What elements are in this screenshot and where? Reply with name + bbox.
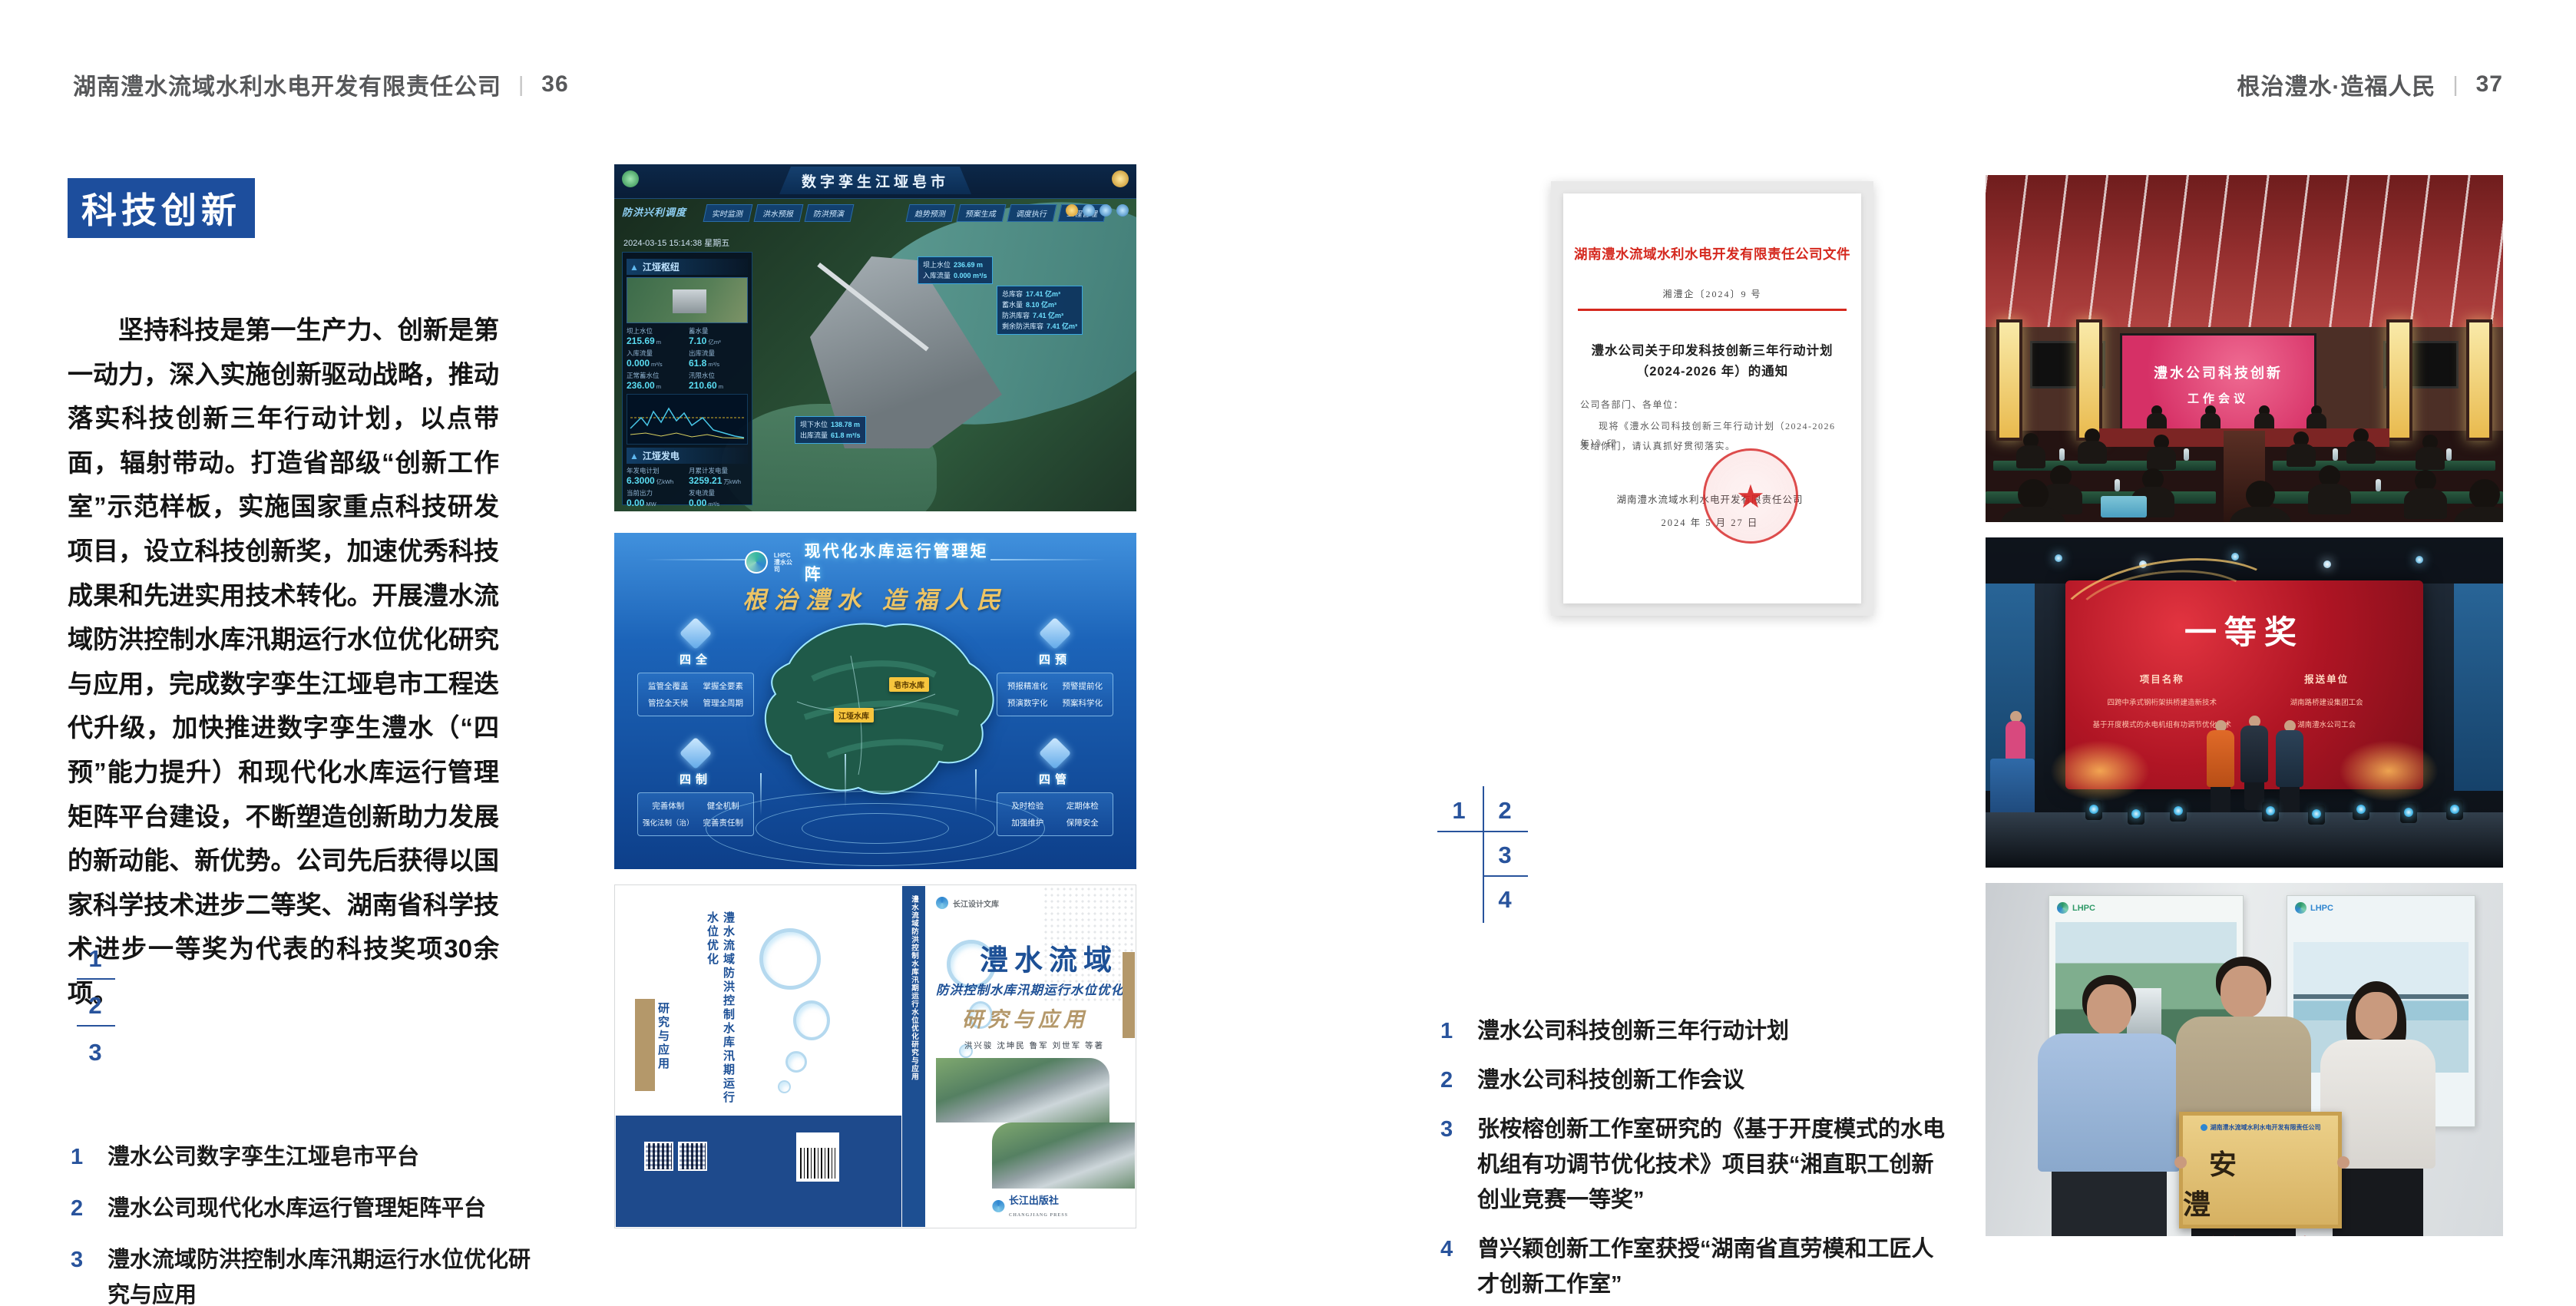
front-title-tail: 研究与应用 [962,1003,1089,1033]
stat-label: 发电流量 [689,488,748,498]
water-bottle [2115,479,2120,491]
tab-flood-forecast: 洪水预报 [754,204,804,222]
group-siyu: 四预 预报精准化 预警提前化 预演数字化 预案科学化 [994,622,1116,716]
figure-studio-group-photo: LHPC LHPC [1986,883,2503,1236]
platform-title: 数字孪生江垭皂市 [779,167,971,194]
caption-list-right: 1 澧水公司科技创新三年行动计划 2 澧水公司科技创新工作会议 3 张桉榕创新工… [1440,1013,1947,1302]
awardee-blue [2276,720,2303,815]
stat-item: 蓄水量7.10亿m³ [689,326,748,346]
caption-row: 3 张桉榕创新工作室研究的《基于开度模式的水电机组有功调节优化技术》项目获“湘直… [1440,1112,1947,1218]
marker-divider [77,978,115,980]
stat-item: 月累计发电量3259.21万kWh [689,466,748,486]
caption-row: 2 澧水公司现代化水库运行管理矩阵平台 [71,1191,531,1226]
map-tag-zaoshi: 皂市水库 [889,677,929,692]
stat-value: 61.8 [689,358,706,369]
panel-title: 江垭发电 [643,449,680,462]
group-item: 预报精准化 [1001,680,1054,692]
figure-marker-3: 3 [1490,841,1520,869]
caption-row: 3 澧水流域防洪控制水库汛期运行水位优化研究与应用 [71,1242,531,1306]
front-cover: 长江设计文库 澧水流域 防洪控制水库汛期运行水位优化 研究与应用 洪兴骏 沈坤民… [925,886,1135,1227]
figure-digital-twin-platform: 数字孪生江垭皂市 防洪兴利调度 实时监测 洪水预报 防洪预演 趋势预测 预案生成… [614,164,1136,511]
caption-number: 2 [71,1191,91,1226]
caption-text: 澧水流域防洪控制水库汛期运行水位优化研究与应用 [107,1242,531,1306]
tag-label: 总库容 [1002,290,1023,298]
caption-number: 1 [71,1139,91,1175]
company-name: 湖南澧水流域水利水电开发有限责任公司 [73,68,501,101]
tag-value: 17.41 亿m³ [1026,290,1060,298]
stat-value: 0.00 [627,498,644,508]
marker-divider-vertical [1483,786,1484,923]
rostrum-speaker [2306,405,2326,431]
map-tag-jiangya: 江垭水库 [834,708,874,722]
light-pillar [2386,319,2412,441]
stat-unit: m³/s [708,361,719,368]
award-col-header: 项目名称 [2087,671,2237,686]
publisher-name-en: CHANGJIANG PRESS [1009,1213,1068,1218]
document-title-line1: 澧水公司关于印发科技创新三年行动计划 [1592,344,1834,358]
moving-head-light [2085,800,2102,820]
host-presenter [2006,711,2025,761]
header-separator: | [2452,72,2459,97]
light-pillar [2076,319,2102,441]
tab-trend-forecast: 趋势预测 [906,204,956,222]
audience-member [2416,435,2445,470]
award-unit: 湖南澧水公司工会 [2251,720,2402,730]
lhpc-logo-icon [745,551,768,574]
panel-title: 江垭枢纽 [643,260,680,273]
caption-list-left: 1 澧水公司数字孪生江垭皂市平台 2 澧水公司现代化水库运行管理矩阵平台 3 澧… [71,1139,531,1306]
trousers [2052,1172,2167,1236]
audience-member [2147,435,2176,470]
moving-head-light [2262,802,2279,822]
stat-label: 当前出力 [627,488,686,498]
audience-member [2404,470,2447,519]
tag-label: 剩余防洪库容 [1002,322,1043,330]
publisher-name: 长江出版社 [1009,1195,1059,1206]
caption-row: 2 澧水公司科技创新工作会议 [1440,1063,1947,1098]
series-logo: 长江设计文库 [936,897,999,909]
group-item: 掌握全要素 [697,680,750,692]
figure-innovation-meeting: 澧水公司科技创新 工作会议 [1986,175,2503,522]
data-sidebar: ▲ 江垭枢纽 坝上水位215.69m 蓄水量7.10亿m³ 入库流量0.000m… [622,252,752,505]
ceiling-light-strips [1986,175,2503,329]
face [2356,992,2397,1040]
group-item: 监管全覆盖 [642,680,695,692]
platform-logo-icon [622,170,639,187]
caption-text: 澧水公司现代化水库运行管理矩阵平台 [107,1191,486,1226]
award-project: 四跨中承式钢桁架拱桥建造新技术 [2087,698,2237,708]
award-col-header: 报送单位 [2251,671,2402,686]
sail-icon: ▲ [630,262,639,273]
group-item: 管理全周期 [697,697,750,709]
page-number-right: 37 [2476,71,2503,98]
running-head-left: 湖南澧水流域水利水电开发有限责任公司 | 36 [73,68,569,101]
module-label: 防洪兴利调度 [622,204,686,219]
tag-label: 蓄水量 [1002,301,1023,309]
basin-map: 皂市水库 江垭水库 [743,610,1008,805]
back-cover-band [616,1116,901,1227]
bubble-decor [785,1051,807,1073]
audience-member [2454,479,2503,522]
caption-row: 1 澧水公司数字孪生江垭皂市平台 [71,1139,531,1175]
stat-label: 入库流量 [627,349,686,358]
stat-value: 215.69 [627,336,655,346]
tab-flood-rehearsal: 防洪预演 [805,204,855,222]
caption-text: 澧水公司科技创新三年行动计划 [1477,1013,1789,1049]
isbn-barcode [796,1132,839,1182]
audience-member [2001,479,2065,522]
map-tag-downstream: 坝下水位138.78 m 出库流量61.8 m³/s [795,416,866,444]
maintenance-icon [1039,737,1071,769]
matrix-header: LHPC 澧水公司 现代化水库运行管理矩阵 [745,539,1006,585]
caption-row: 4 曾兴颖创新工作室获授“湖南省直劳模和工匠人才创新工作室” [1440,1232,1947,1302]
panel-header-power: ▲ 江垭发电 [627,448,748,464]
figure-marker-2: 2 [1490,797,1520,825]
light-pin [975,769,977,814]
stat-value: 3259.21 [689,475,722,486]
nav-tabs-left: 实时监测 洪水预报 防洪预演 [705,204,852,222]
bubble-decor [778,1080,791,1093]
stat-item: 出库流量61.8m³/s [689,349,748,369]
monitor-icon [680,617,712,650]
figure-award-ceremony: 一等奖 项目名称 四跨中承式钢桁架拱桥建造新技术 基于开度模式的水电机组有功调节… [1986,537,2503,868]
front-title-sub: 防洪控制水库汛期运行水位优化 [936,980,1124,998]
section-title: 科技创新 [68,178,255,238]
light-pin [845,754,846,808]
stat-unit: m³/s [651,361,663,368]
toolbar-icons [1066,204,1129,217]
alert-icon [1066,204,1078,217]
stage-side-screen [2454,584,2503,791]
lhpc-logo-icon [2295,902,2306,914]
book-spine: 澧水流域防洪控制水库汛期运行水位优化研究与应用 [902,886,925,1227]
settings-icon [1100,204,1112,217]
group-item: 定期体检 [1057,800,1109,812]
water-bottle [2333,448,2338,461]
front-title-region: 澧水流域 [980,937,1118,978]
light-pin [760,773,762,815]
document-salutation: 公司各部门、各单位： [1580,398,1684,411]
figure-marker-1: 1 [1443,797,1474,825]
figure-marker-4: 4 [1490,886,1520,914]
black-pants [2333,1169,2423,1236]
bubble-decor [759,928,821,990]
tag-label: 坝下水位 [800,421,828,428]
caption-row: 1 澧水公司科技创新三年行动计划 [1440,1013,1947,1049]
caption-number: 2 [1440,1063,1460,1098]
face [2087,984,2131,1035]
document-title: 澧水公司关于印发科技创新三年行动计划 （2024-2026 年）的通知 [1563,341,1861,382]
group-item: 保障安全 [1057,817,1109,828]
halo-ring [802,813,949,844]
header-decor-line [645,559,760,560]
stage-light [2416,556,2423,564]
document-header: 湖南澧水流域水利水电开发有限责任公司文件 [1563,244,1861,263]
water-bottle [2184,448,2189,461]
marker-divider [77,1025,115,1027]
shirt-blue-polo [2038,1033,2181,1172]
marker-divider [1437,831,1528,832]
dam-thumbnail [627,277,748,323]
stat-value: 236.00 [627,380,655,391]
awardee-orange [2207,720,2234,815]
moving-head-light [2170,802,2187,822]
stat-item: 正常蓄水位236.00m [627,371,686,391]
stat-unit: m³/s [708,501,719,508]
stat-value: 6.3000 [627,475,655,486]
group-name: 四管 [1039,771,1071,787]
figure-marker-3: 3 [77,1039,114,1066]
water-level-chart [627,394,748,445]
group-item: 预警提前化 [1057,680,1109,692]
tab-realtime-monitor: 实时监测 [703,204,753,222]
stat-unit: 万kWh [723,478,741,485]
audience-member [2078,428,2107,464]
group-item: 强化法制（治） [642,817,695,828]
caption-number: 4 [1440,1232,1460,1302]
face [2221,966,2267,1018]
dam-photo [936,1058,1109,1122]
authors-line: 洪兴骏 沈坤民 鲁军 刘世军 等著 [964,1040,1104,1051]
tab-dispatch-execute: 调度执行 [1007,204,1057,222]
poster-logo: LHPC [2057,902,2095,914]
stat-unit: m [719,383,723,390]
tag-value: 138.78 m [831,421,860,428]
red-rule [1578,309,1846,311]
stat-unit: 亿m³ [708,339,720,346]
map-tag-upstream: 坝上水位236.69 m 入库流量0.000 m³/s [918,256,993,284]
spine-title: 澧水流域防洪控制水库汛期运行水位优化研究与应用 [908,895,919,1219]
group-name: 四全 [680,651,712,667]
matrix-title: 现代化水库运行管理矩阵 [805,539,1006,585]
poster-logo-text: LHPC [2310,904,2333,913]
lhpc-logo-icon [2057,902,2068,914]
stat-item: 发电流量0.00m³/s [689,488,748,508]
water-bottle [2376,479,2381,491]
document-body-line: 发给你们，请认真抓好贯彻落实。 [1580,438,1846,455]
running-head-right: 根治澧水·造福人民 | 37 [2237,68,2503,101]
stat-label: 年发电计划 [627,466,686,475]
rostrum-speaker [2254,405,2274,431]
group-item: 管控全天候 [642,697,695,709]
stat-item: 年发电计划6.3000亿kWh [627,466,686,486]
stat-value: 0.000 [627,358,650,369]
page-number-left: 36 [541,71,568,98]
user-icon [1083,204,1095,217]
stat-value: 0.00 [689,498,706,508]
award-col-unit: 报送单位 湖南路桥建设集团工会 湖南澧水公司工会 [2251,671,2402,730]
screen-title-line2: 工作会议 [2187,390,2249,406]
caption-text: 曾兴颖创新工作室获授“湖南省直劳模和工匠人才创新工作室” [1477,1232,1947,1302]
emblem-icon [1112,170,1129,187]
tag-label: 出库流量 [800,431,828,439]
book-spread: 湖南澧水流域水利水电开发有限责任公司 | 36 科技创新 坚持科技是第一生产力、… [0,0,2576,1306]
moving-head-light [2446,800,2463,820]
figure-book-cover: 澧水流域防洪控制水库汛期运行水位优化 研究与应用 澧水流域防洪控制水库汛期运行水… [614,884,1136,1228]
stat-unit: m [656,383,661,390]
fullscreen-icon [1116,204,1129,217]
caption-number: 3 [71,1242,91,1306]
logo-en: LHPC [774,552,791,559]
stat-unit: 亿kWh [656,478,674,485]
stat-grid: 年发电计划6.3000亿kWh 月累计发电量3259.21万kWh 当前出力0.… [627,466,748,508]
map-tag-capacity: 总库容17.41 亿m³ 蓄水量8.10 亿m³ 防洪库容7.41 亿m³ 剩余… [997,286,1083,335]
gold-glow [2339,740,2439,802]
stat-label: 坝上水位 [627,326,686,336]
figure-marker-2: 2 [77,992,114,1020]
sail-icon: ▲ [630,451,639,461]
group-siquan: 四全 监管全覆盖 掌握全要素 管控全天候 管理全周期 [634,622,757,716]
group-panel: 预报精准化 预警提前化 预演数字化 预案科学化 [997,673,1113,716]
group-name: 四预 [1039,651,1071,667]
stat-label: 正常蓄水位 [627,371,686,380]
stat-item: 入库流量0.000m³/s [627,349,686,369]
poster-logo-text: LHPC [2072,904,2095,913]
caption-text: 澧水公司数字孪生江垭皂市平台 [107,1139,419,1175]
poster-logo: LHPC [2295,902,2333,914]
forecast-icon [1039,617,1071,650]
group-item: 预案科学化 [1057,697,1109,709]
light-pillar [2466,319,2492,441]
document-number: 湘澧企〔2024〕9 号 [1563,287,1861,300]
group-name: 四制 [680,771,712,787]
seal-star-icon: ★ [1736,478,1765,515]
back-cover-subtitle: 研究与应用 [655,1002,671,1094]
group-item: 预演数字化 [1001,697,1054,709]
stat-grid: 坝上水位215.69m 蓄水量7.10亿m³ 入库流量0.000m³/s 出库流… [627,326,748,391]
stage-light [2055,554,2062,562]
audience-member [2308,465,2351,514]
document-sheet: 湖南澧水流域水利水电开发有限责任公司文件 湘澧企〔2024〕9 号 澧水公司关于… [1563,193,1861,603]
hand [2174,1156,2187,1169]
qr-code [678,1142,707,1171]
caption-text: 张桉榕创新工作室研究的《基于开度模式的水电机组有功调节优化技术》项目获“湘直职工… [1477,1112,1947,1218]
stat-label: 月累计发电量 [689,466,748,475]
tab-plan-generate: 预案生成 [957,204,1007,222]
stat-value: 210.60 [689,380,717,391]
caption-number: 3 [1440,1112,1460,1218]
audience-member [2346,428,2376,464]
award-title: 一等奖 [2065,607,2423,653]
moving-head-light [2308,805,2325,825]
platform-datetime: 2024-03-15 15:14:38 星期五 [623,236,729,249]
tag-label: 坝上水位 [923,261,951,269]
screen-title-line1: 澧水公司科技创新 [2154,362,2283,382]
series-name: 长江设计文库 [953,898,999,909]
tag-value: 236.69 m [954,261,983,269]
innovation-studio-plaque: 湖南澧水流域水利水电开发有限责任公司 安 澧 创新工作室 [2179,1112,2342,1228]
tag-value: 7.41 亿m³ [1033,312,1063,319]
tag-label: 入库流量 [923,272,951,279]
audience-member [2230,481,2291,522]
rostrum-speaker [2201,405,2221,431]
presenter-suit [2240,716,2268,810]
stat-item: 当前出力0.00MW [627,488,686,508]
logo-text: LHPC 澧水公司 [774,552,799,573]
group-item: 完善体制 [642,800,695,812]
tissue-box [2101,496,2147,517]
caption-number: 1 [1440,1013,1460,1049]
moving-head-light [2353,800,2369,820]
tag-value: 0.000 m³/s [954,272,987,279]
institution-icon [680,737,712,769]
header-decor-line [990,559,1106,560]
water-bottle [2059,448,2065,461]
figure-official-document: 湖南澧水流域水利水电开发有限责任公司文件 湘澧企〔2024〕9 号 澧水公司关于… [1551,181,1873,616]
plaque-title: 安 澧 [2183,1142,2338,1222]
light-pillar [1996,319,2022,441]
audience-member [2016,433,2045,468]
tag-value: 8.10 亿m³ [1026,301,1057,309]
stat-value: 7.10 [689,336,706,346]
plaque-subtitle: 创新工作室 [2201,1232,2320,1236]
stat-label: 出库流量 [689,349,748,358]
back-cover-title: 澧水流域防洪控制水库汛期运行水位优化 [704,911,736,1111]
publisher-logo-icon [992,1200,1004,1212]
header-separator: | [518,72,524,97]
body-paragraph: 坚持科技是第一生产力、创新是第一动力，深入实施创新驱动战略，推动落实科技创新三年… [68,308,499,1016]
stage-floor [1986,812,2503,868]
back-tan-block [635,999,655,1091]
plaque-org-line: 湖南澧水流域水利水电开发有限责任公司 [2201,1123,2321,1132]
hand [2337,1156,2349,1169]
stage-light [2323,560,2331,568]
bubble-decor [793,1000,830,1040]
stat-label: 蓄水量 [689,326,748,336]
marker-divider [1483,875,1528,877]
series-logo-icon [936,897,948,909]
tag-value: 61.8 m³/s [831,431,861,439]
panel-header-hub: ▲ 江垭枢纽 [627,259,748,275]
dam-photo [992,1122,1135,1189]
document-title-line2: （2024-2026 年）的通知 [1636,365,1789,379]
publisher: 长江出版社 CHANGJIANG PRESS [992,1192,1068,1219]
water-bottle [2446,448,2452,461]
figure-matrix-platform: LHPC 澧水公司 现代化水库运行管理矩阵 根治澧水 造福人民 皂市水库 江垭水… [614,533,1136,869]
official-seal: ★ [1703,448,1798,544]
stat-unit: MW [646,501,656,508]
stage-light [2231,553,2239,560]
stat-item: 汛限水位210.60m [689,371,748,391]
caption-text: 澧水公司科技创新工作会议 [1477,1063,1744,1098]
moving-head-light [2128,805,2144,825]
audience-member [2287,431,2316,467]
tag-label: 防洪库容 [1002,312,1030,319]
stat-unit: m [656,339,661,346]
rostrum-speaker [2147,405,2167,431]
moving-head-light [2400,803,2417,823]
qr-code [644,1142,673,1171]
platform-header: 数字孪生江垭皂市 [614,164,1136,199]
stat-label: 汛限水位 [689,371,748,380]
stat-item: 坝上水位215.69m [627,326,686,346]
front-tan-block [1123,952,1135,1038]
slogan-text: 根治澧水·造福人民 [2237,68,2435,101]
tag-value: 7.41 亿m³ [1047,322,1077,330]
award-unit: 湖南路桥建设集团工会 [2251,698,2402,708]
logo-cn: 澧水公司 [774,559,792,573]
group-panel: 监管全覆盖 掌握全要素 管控全天候 管理全周期 [637,673,754,716]
gold-glow [2050,740,2150,802]
figure-marker-1: 1 [77,945,114,973]
